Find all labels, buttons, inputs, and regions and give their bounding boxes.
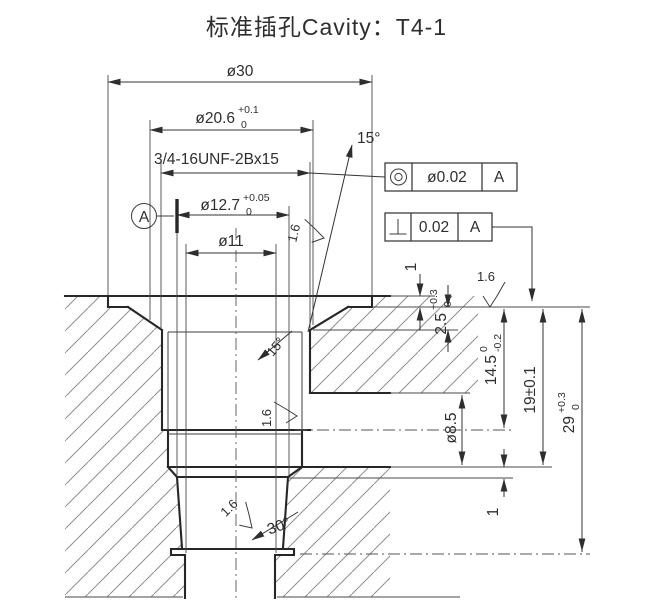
roughness-neck-value: 1.6 — [217, 496, 240, 519]
port-dia-group: ø8.5 — [443, 412, 460, 443]
total-depth-group: 29 +0.3 0 — [556, 392, 582, 433]
roughness-bore: 1.6 — [259, 402, 297, 427]
dim-floor-step-label: 1 — [485, 508, 502, 517]
dim-seat-depth-tol-up: +0.3 — [428, 289, 440, 310]
dim-flange-depth-label: 1 — [403, 263, 420, 272]
dim-port-center-depth-tol-dn: -0.2 — [492, 334, 504, 352]
roughness-seat-value: 1.6 — [477, 269, 495, 284]
dim-dia127-tol-dn: 0 — [246, 206, 252, 218]
dim-port-dia-label: ø8.5 — [443, 412, 460, 443]
fcf-perpendicularity-datum: A — [470, 219, 481, 236]
perpendicularity-icon — [390, 219, 407, 234]
roughness-neck: 1.6 — [217, 491, 262, 536]
technical-drawing: A ø0.02 A 0.02 A ø30 ø20.6 +0.1 0 3/4-16… — [0, 0, 653, 600]
dim-total-depth-label: 29 — [561, 416, 578, 433]
dim-total-depth-tol-dn: 0 — [570, 404, 582, 410]
dim-dia11-label: ø11 — [218, 233, 244, 250]
dim-seat-depth-tol-dn: 0 — [442, 301, 454, 307]
roughness-seat: 1.6 — [477, 269, 505, 307]
fcf-perpendicularity-frame: 0.02 A — [385, 213, 492, 241]
taper-angle-label: 15° — [357, 130, 380, 147]
roughness-taper-value: 1.6 — [284, 223, 303, 244]
fcf-concentricity-value: ø0.02 — [427, 169, 467, 186]
hatch-right-lower-block — [275, 467, 390, 597]
dim-dia30-label: ø30 — [227, 63, 254, 80]
roughness-icon — [274, 402, 297, 423]
roughness-icon — [483, 282, 505, 307]
roughness-taper: 1.6 — [284, 216, 327, 249]
dim-seat-depth-label: 2.5 — [433, 313, 450, 335]
hatch-right-upper-block — [310, 296, 478, 393]
dim-port-center-depth-label: 14.5 — [483, 355, 500, 385]
concentricity-icon — [391, 169, 407, 185]
fcf-perpendicularity-leader — [492, 227, 532, 301]
floor-depth-group: 19±0.1 — [522, 366, 539, 413]
port-center-depth-group: 14.5 0 -0.2 — [478, 334, 504, 385]
datum-a: A — [132, 199, 178, 233]
dim-total-depth-tol-up: +0.3 — [556, 392, 568, 413]
dim-dia127-tol-up: +0.05 — [243, 192, 270, 204]
fcf-concentricity-frame: ø0.02 A — [385, 163, 517, 191]
flange-depth-group: 1 — [403, 263, 420, 272]
roughness-bore-value: 1.6 — [259, 409, 274, 427]
fcf-perpendicularity-value: 0.02 — [419, 219, 449, 236]
roughness-icon — [300, 219, 327, 245]
concentricity-icon-inner — [395, 173, 402, 180]
dim-thread-label: 3/4-16UNF-2Bx15 — [154, 151, 279, 168]
dim-dia206-tol-up: +0.1 — [238, 104, 259, 116]
dim-port-center-depth-tol-up: 0 — [478, 346, 490, 352]
fcf-concentricity-datum: A — [494, 169, 505, 186]
dim-dia206-tol-dn: 0 — [241, 119, 247, 131]
fcf-concentricity-leader — [310, 173, 385, 177]
dim-dia127-label: ø12.7 — [200, 197, 240, 214]
floor-step-group: 1 — [485, 508, 502, 517]
datum-label: A — [139, 209, 150, 226]
dim-dia206-label: ø20.6 — [195, 110, 235, 127]
dim-floor-depth-label: 19±0.1 — [522, 366, 539, 413]
